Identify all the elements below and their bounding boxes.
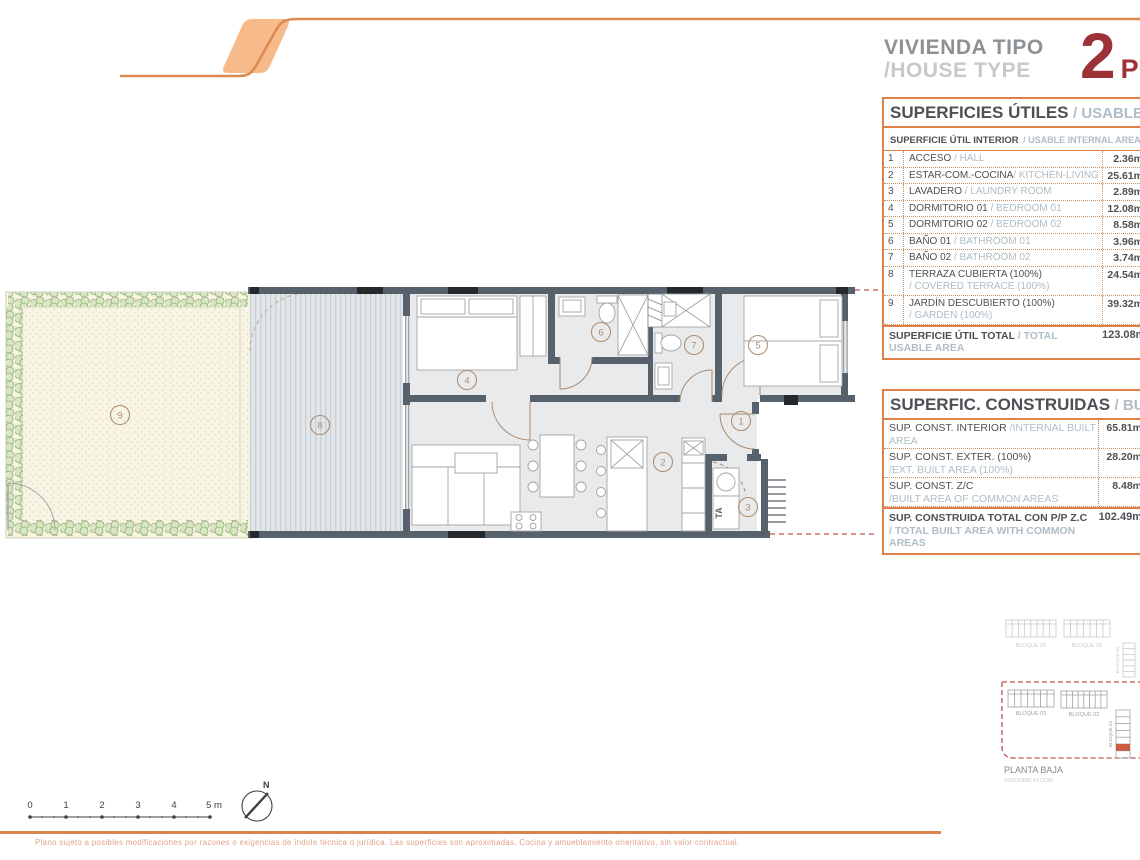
toilet-icon: [597, 296, 617, 303]
block-06-label: BLOQUE 06: [1072, 643, 1103, 649]
table-row: SUP. CONST. INTERIOR /INTERNAL BUILT ARE…: [884, 420, 1140, 449]
ta-label: TA: [714, 507, 724, 519]
room-number-bedroom2: 5: [755, 341, 760, 352]
shaft-hatch: [648, 294, 662, 327]
room-number-garden: 9: [117, 411, 122, 422]
disclaimer-text: Plano sujeto a posibles modificaciones p…: [35, 838, 739, 847]
usable-table-subheader: SUPERFICIE ÚTIL INTERIOR / USABLE INTERN…: [884, 128, 1140, 151]
table-row: 3LAVADERO / LAUNDRY ROOM2.89m: [884, 184, 1140, 201]
house-type-title-en: /HOUSE TYPE: [884, 59, 1031, 83]
block-04-label: BLOQUE 04: [1115, 646, 1121, 673]
table-row: 2ESTAR-COM.-COCINA/ KITCHEN-LIVING25.61m: [884, 168, 1140, 185]
room-number-bath2: 7: [691, 341, 696, 352]
unit-type-number: 2PE: [1080, 24, 1140, 88]
hedge-bottom: [8, 520, 248, 536]
ground-floor-caption-en: /GROUND FLOOR: [1004, 778, 1053, 784]
svg-text:3: 3: [135, 800, 140, 811]
table-row: 5DORMITORIO 02 / BEDROOM 028.58m: [884, 217, 1140, 234]
site-key-plan: BLOQUE 05 BLOQUE 06 BLOQUE 04 BLOQUE 03 …: [992, 606, 1140, 790]
room-number-bedroom1: 4: [464, 376, 469, 387]
built-table-header: SUPERFIC. CONSTRUIDAS / BUILT AREA: [884, 391, 1140, 420]
scale-labels: 0 1 2 3 4 5 m: [27, 800, 222, 811]
room-number-living: 2: [660, 458, 665, 469]
plan-sheet: VIVIENDA TIPO /HOUSE TYPE 2PE SUPERFICIE…: [0, 0, 1140, 860]
unit-suffix: PE: [1121, 54, 1140, 84]
hedge-top: [8, 292, 248, 307]
table-row: SUP. CONST. EXTER. (100%)/EXT. BUILT ARE…: [884, 449, 1140, 478]
house-type-title-es: VIVIENDA TIPO: [884, 36, 1044, 60]
compass-icon: N: [242, 780, 272, 821]
built-total-row: SUP. CONSTRUIDA TOTAL CON P/P Z.C/ TOTAL…: [884, 507, 1140, 553]
block-01-label: BLOQUE 01: [1108, 720, 1114, 747]
usable-total-row: SUPERFICIE ÚTIL TOTAL / TOTAL USABLE ARE…: [884, 325, 1140, 358]
scale-and-compass: 0 1 2 3 4 5 m N: [15, 778, 285, 838]
table-row: 1ACCESO / HALL2.36m: [884, 151, 1140, 168]
block-03-label: BLOQUE 03: [1016, 711, 1047, 717]
entrance-grille: [768, 480, 786, 522]
svg-text:5 m: 5 m: [206, 800, 222, 811]
table-row: 9JARDÍN DESCUBIERTO (100%)/ GARDEN (100%…: [884, 296, 1140, 325]
table-row: 7BAÑO 02 / BATHROOM 023.74m: [884, 250, 1140, 267]
svg-text:2: 2: [99, 800, 104, 811]
built-area-table: SUPERFIC. CONSTRUIDAS / BUILT AREA SUP. …: [882, 389, 1140, 555]
table-row: 4DORMITORIO 01 / BEDROOM 0112.08m: [884, 201, 1140, 218]
usable-area-table: SUPERFICIES ÚTILES / USABLE AREA SUPERFI…: [882, 97, 1140, 360]
north-label: N: [263, 780, 270, 790]
room-number-laundry: 3: [745, 503, 750, 514]
room-number-hall: 1: [738, 417, 743, 428]
svg-text:4: 4: [171, 800, 176, 811]
svg-text:1: 1: [63, 800, 68, 811]
room-number-bath1: 6: [598, 328, 603, 339]
coffee-table-icon: [455, 453, 497, 473]
block-02-label: BLOQUE 02: [1069, 712, 1100, 718]
dining-table-icon: [540, 435, 574, 497]
table-row: 6BAÑO 01 / BATHROOM 013.96m: [884, 234, 1140, 251]
highlighted-unit: [1116, 744, 1130, 751]
usable-title-en: / USABLE AREA: [1073, 105, 1140, 122]
svg-text:0: 0: [27, 800, 32, 811]
floor-plan: TA 1 2 3 4 5 6 7 8 9: [0, 283, 880, 545]
terrace-area: [250, 293, 403, 531]
table-row: SUP. CONST. Z/C/BUILT AREA OF COMMON ARE…: [884, 478, 1140, 507]
block-05-label: BLOQUE 05: [1016, 643, 1047, 649]
ground-floor-caption-es: PLANTA BAJA: [1004, 765, 1063, 775]
table-row: 8TERRAZA CUBIERTA (100%)/ COVERED TERRAC…: [884, 267, 1140, 296]
usable-title-es: SUPERFICIES ÚTILES: [890, 103, 1069, 122]
unit-number: 2: [1080, 20, 1116, 92]
usable-table-header: SUPERFICIES ÚTILES / USABLE AREA: [884, 99, 1140, 128]
room-number-terrace: 8: [317, 421, 322, 432]
footer-rule: [0, 831, 941, 834]
cooktop-icon: [511, 512, 541, 531]
